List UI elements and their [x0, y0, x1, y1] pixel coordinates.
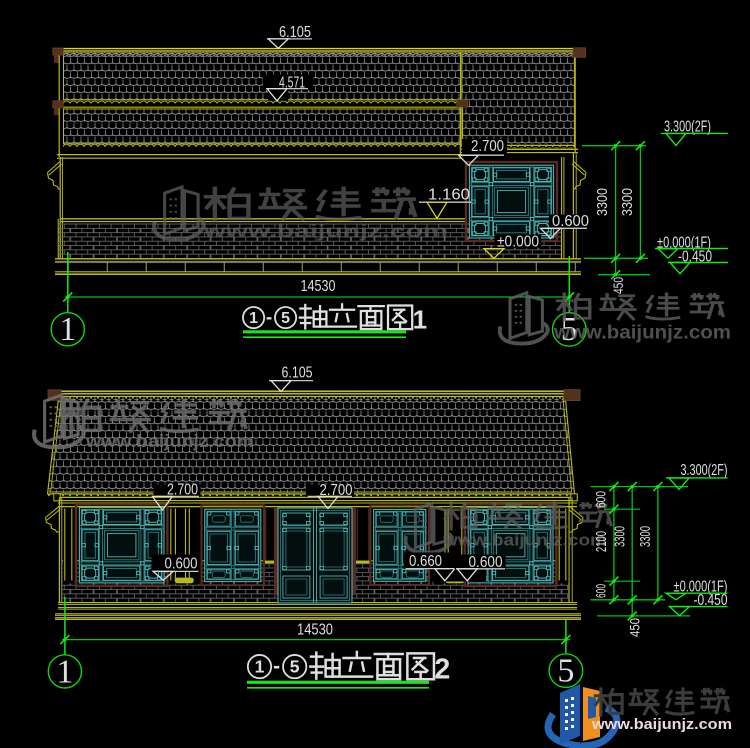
svg-text:±0.000: ±0.000 [497, 234, 539, 251]
svg-text:14530: 14530 [301, 278, 336, 295]
svg-text:1: 1 [413, 305, 427, 335]
svg-text:-: - [266, 307, 272, 328]
svg-text:-: - [273, 655, 280, 678]
svg-text:5: 5 [281, 310, 290, 327]
svg-text:6.105: 6.105 [282, 365, 313, 382]
svg-text:5: 5 [557, 653, 574, 690]
svg-text:3300: 3300 [637, 526, 654, 547]
svg-text:5: 5 [290, 657, 300, 677]
svg-text:2: 2 [434, 654, 450, 686]
svg-text:1: 1 [59, 311, 76, 348]
svg-text:2100: 2100 [593, 531, 610, 552]
svg-text:www.baijunjz.com: www.baijunjz.com [85, 431, 254, 451]
svg-text:1: 1 [255, 657, 265, 677]
svg-text:www.baijunjz.com: www.baijunjz.com [553, 323, 731, 344]
svg-text:450: 450 [610, 277, 626, 294]
svg-text:2.700: 2.700 [471, 138, 504, 155]
svg-text:3300: 3300 [619, 188, 636, 216]
svg-text:3300: 3300 [594, 188, 611, 216]
svg-text:14530: 14530 [297, 622, 333, 639]
svg-text:3.300(2F): 3.300(2F) [681, 462, 728, 479]
svg-text:1: 1 [249, 310, 258, 327]
svg-text:0.660: 0.660 [409, 553, 442, 570]
svg-text:3300: 3300 [612, 526, 629, 547]
svg-text:600: 600 [592, 584, 608, 598]
svg-text:1.160: 1.160 [428, 187, 470, 204]
svg-text:www.baijunjz.com: www.baijunjz.com [202, 221, 448, 241]
svg-text:1: 1 [56, 653, 73, 690]
svg-text:450: 450 [627, 618, 643, 637]
svg-text:www.baijunjz.com: www.baijunjz.com [442, 532, 607, 550]
svg-text:0.600: 0.600 [552, 213, 589, 230]
svg-text:600: 600 [592, 491, 608, 508]
svg-text:www.baijunjz.com: www.baijunjz.com [591, 716, 732, 733]
svg-text:0.600: 0.600 [165, 556, 198, 573]
